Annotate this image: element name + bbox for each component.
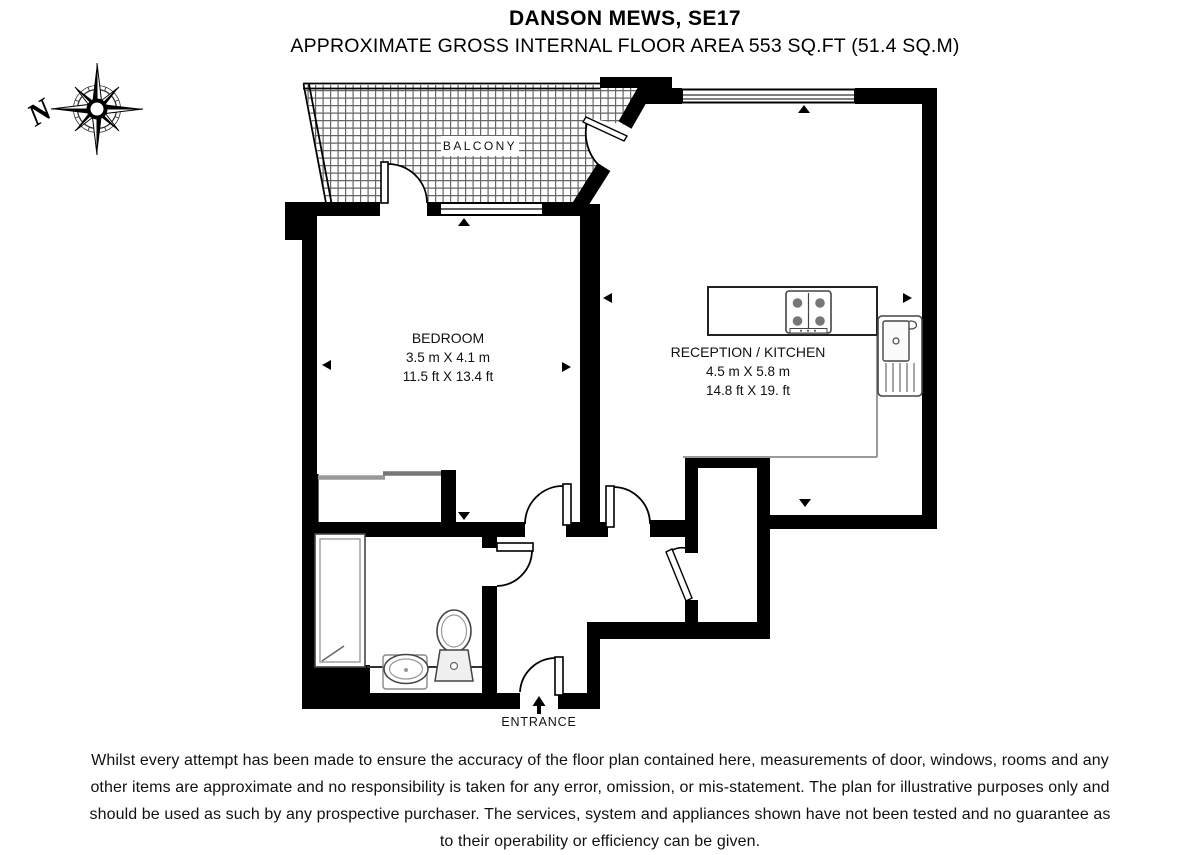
kitchen-sink-icon [878, 316, 922, 396]
bathtub-icon [315, 534, 365, 667]
wall-bottom [302, 693, 520, 709]
arrow-up-icon [458, 218, 470, 226]
hob-icon [786, 291, 831, 333]
toilet-icon [435, 610, 473, 681]
bedroom-size-imperial: 11.5 ft X 13.4 ft [348, 367, 548, 386]
disclaimer-line-2: other items are approximate and no respo… [0, 774, 1200, 801]
bedroom-name: BEDROOM [348, 329, 548, 348]
entrance-door [520, 657, 563, 695]
reception-size-metric: 4.5 m X 5.8 m [633, 362, 863, 381]
cupboard-door [666, 548, 694, 601]
disclaimer-line-1: Whilst every attempt has been made to en… [0, 747, 1200, 774]
reception-name: RECEPTION / KITCHEN [633, 343, 863, 362]
reception-size-imperial: 14.8 ft X 19. ft [633, 381, 863, 400]
wardrobe [317, 472, 441, 522]
compass-rose-icon: N [20, 63, 143, 155]
disclaimer: Whilst every attempt has been made to en… [0, 747, 1200, 855]
bedroom-size-metric: 3.5 m X 4.1 m [348, 348, 548, 367]
compass-north-label: N [20, 90, 60, 133]
reception-door [606, 486, 650, 527]
wall-right [922, 88, 937, 529]
bathroom-door [497, 543, 533, 586]
disclaimer-line-3: should be used as such by any prospectiv… [0, 801, 1200, 828]
balcony-label: BALCONY [441, 139, 519, 153]
bedroom-door [525, 484, 571, 525]
wall-bedroom-top [285, 202, 380, 216]
reception-label: RECEPTION / KITCHEN 4.5 m X 5.8 m 14.8 f… [633, 343, 863, 400]
arrow-right-icon [562, 362, 571, 372]
arrow-down-icon [458, 512, 470, 520]
bedroom-label: BEDROOM 3.5 m X 4.1 m 11.5 ft X 13.4 ft [348, 329, 548, 386]
arrow-up-icon [798, 105, 810, 113]
arrow-left-icon [603, 293, 612, 303]
floor-plan: N [0, 0, 1200, 848]
arrow-right-icon [903, 293, 912, 303]
arrow-left-icon [322, 360, 331, 370]
disclaimer-line-4: to their operability or efficiency can b… [0, 828, 1200, 855]
arrow-down-icon [799, 499, 811, 507]
wall-bathroom-right [482, 586, 497, 693]
wall-divider [580, 204, 600, 527]
wall-reception-top [656, 88, 682, 104]
entrance-arrow-icon [533, 696, 546, 714]
bathroom-fixtures [315, 534, 482, 689]
entrance-label: ENTRANCE [488, 715, 590, 729]
reception-window [682, 90, 855, 103]
basin-icon [383, 655, 428, 690]
wall-bottom-right [587, 622, 770, 639]
